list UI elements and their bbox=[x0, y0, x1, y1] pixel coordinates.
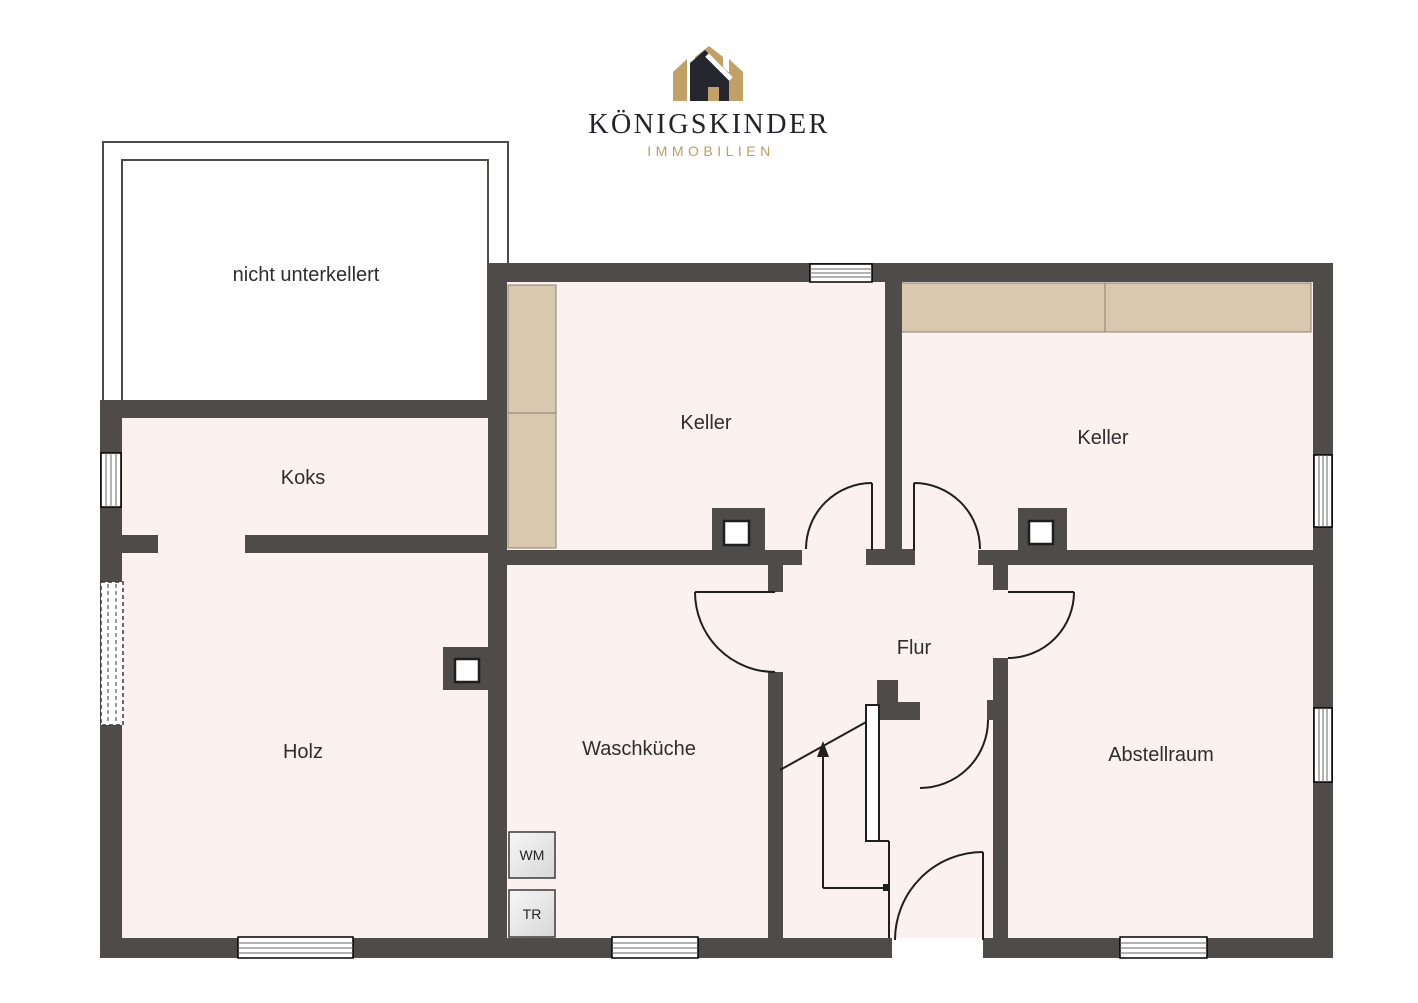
dryer-box: TR bbox=[509, 890, 555, 937]
floor-plan: KÖNIGSKINDER IMMOBILIEN bbox=[0, 0, 1418, 1003]
brand-logo: KÖNIGSKINDER IMMOBILIEN bbox=[588, 46, 830, 159]
stair-railing bbox=[866, 705, 879, 841]
room-label-holz: Holz bbox=[283, 741, 323, 763]
crown-icon bbox=[673, 46, 743, 101]
window-bottom-waschkueche bbox=[612, 937, 698, 958]
window-left-koks bbox=[101, 453, 121, 507]
window-top-keller bbox=[810, 264, 872, 282]
dryer-label: TR bbox=[523, 906, 542, 922]
cellar-shaft-marker bbox=[101, 582, 123, 725]
brand-name: KÖNIGSKINDER bbox=[588, 109, 830, 140]
window-bottom-abstellraum bbox=[1120, 937, 1207, 958]
washer-box: WM bbox=[509, 832, 555, 878]
room-label-nicht-unterkellert: nicht unterkellert bbox=[233, 264, 380, 286]
washer-label: WM bbox=[520, 847, 545, 863]
room-label-keller-right: Keller bbox=[1077, 427, 1128, 449]
room-label-waschkueche: Waschküche bbox=[582, 738, 696, 760]
window-right-keller bbox=[1314, 455, 1332, 527]
room-label-flur: Flur bbox=[897, 637, 932, 659]
window-right-abstellraum bbox=[1314, 708, 1332, 782]
room-label-abstellraum: Abstellraum bbox=[1108, 744, 1214, 766]
room-label-keller-left: Keller bbox=[680, 412, 731, 434]
floor-plan-page: KÖNIGSKINDER IMMOBILIEN bbox=[0, 0, 1418, 1003]
window-bottom-holz bbox=[238, 937, 353, 958]
brand-tagline: IMMOBILIEN bbox=[647, 143, 774, 159]
room-label-koks: Koks bbox=[281, 467, 325, 489]
